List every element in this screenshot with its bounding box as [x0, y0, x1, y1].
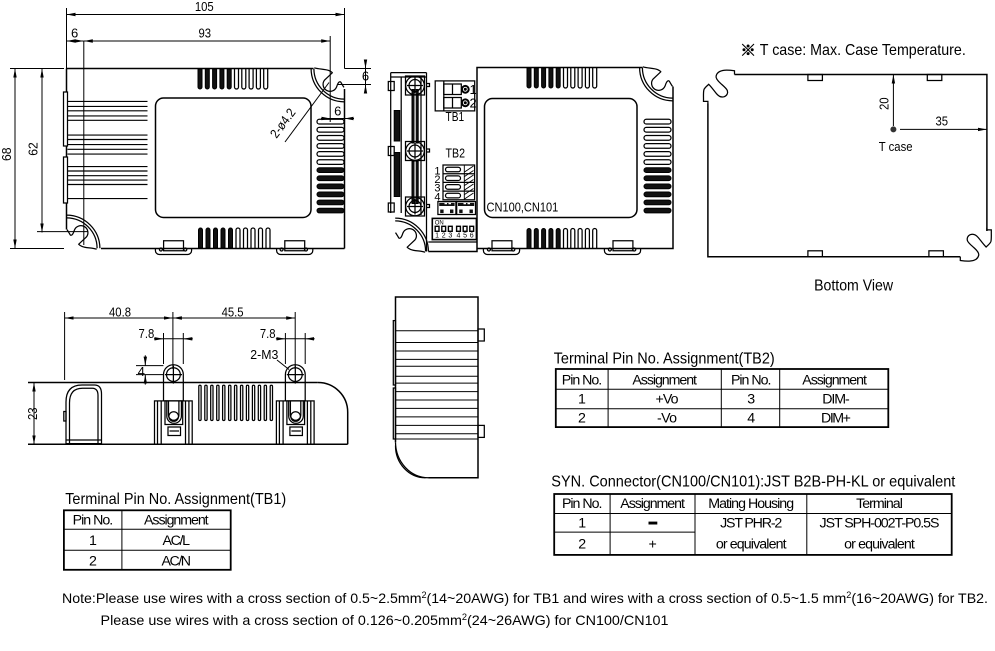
- svg-text:3: 3: [747, 392, 755, 408]
- svg-text:45.5: 45.5: [222, 304, 244, 319]
- svg-text:2-ø4.2: 2-ø4.2: [267, 105, 299, 140]
- svg-text:4: 4: [138, 364, 145, 379]
- svg-text:Please use wires with a cross: Please use wires with a cross section of…: [101, 612, 669, 628]
- svg-text:or equivalent: or equivalent: [716, 536, 787, 552]
- svg-text:Assignment: Assignment: [632, 372, 697, 388]
- svg-text:or equivalent: or equivalent: [844, 536, 915, 552]
- svg-text:Pin No.: Pin No.: [562, 372, 603, 388]
- svg-text:7.8: 7.8: [139, 326, 155, 341]
- svg-text:6: 6: [71, 25, 78, 40]
- svg-text:3: 3: [448, 233, 452, 240]
- svg-text:SYN. Connector(CN100/CN101):JS: SYN. Connector(CN100/CN101):JST B2B-PH-K…: [551, 473, 956, 490]
- svg-text:DIM+: DIM+: [821, 411, 851, 427]
- svg-text:Assignment: Assignment: [620, 496, 685, 512]
- svg-text:93: 93: [199, 25, 212, 40]
- svg-text:6: 6: [362, 69, 369, 84]
- svg-text:Terminal Pin No. Assignment(TB: Terminal Pin No. Assignment(TB1): [65, 491, 286, 508]
- svg-text:JST SPH-002T-P0.5S: JST SPH-002T-P0.5S: [820, 516, 940, 532]
- svg-text:AC/L: AC/L: [163, 533, 191, 549]
- svg-text:Bottom View: Bottom View: [814, 278, 893, 295]
- svg-text:6: 6: [470, 233, 474, 240]
- svg-text:2: 2: [442, 233, 446, 240]
- svg-text:Pin No.: Pin No.: [562, 496, 603, 512]
- svg-text:T case: Max. Case Temperature.: T case: Max. Case Temperature.: [760, 42, 966, 59]
- svg-text:Assignment: Assignment: [144, 513, 209, 529]
- svg-text:1: 1: [435, 233, 439, 240]
- svg-text:Note:Please use wires with a c: Note:Please use wires with a cross secti…: [62, 590, 988, 606]
- svg-text:T case: T case: [879, 139, 913, 154]
- svg-text:TB2: TB2: [446, 147, 466, 161]
- svg-text:2-M3: 2-M3: [250, 347, 278, 362]
- svg-text:1: 1: [578, 516, 586, 532]
- svg-text:20: 20: [877, 97, 892, 110]
- svg-text:AC/N: AC/N: [162, 553, 192, 569]
- svg-text:6: 6: [334, 104, 341, 119]
- svg-text:+Vo: +Vo: [656, 392, 679, 408]
- svg-text:Pin No.: Pin No.: [731, 372, 772, 388]
- svg-text:7.8: 7.8: [260, 326, 276, 341]
- svg-text:68: 68: [0, 148, 14, 162]
- svg-text:4: 4: [457, 233, 461, 240]
- svg-text:2: 2: [578, 536, 586, 552]
- svg-text:2: 2: [578, 411, 586, 427]
- svg-text:Terminal: Terminal: [856, 496, 903, 512]
- svg-text:40.8: 40.8: [109, 304, 131, 319]
- svg-text:105: 105: [195, 0, 214, 14]
- svg-text:62: 62: [25, 142, 40, 156]
- svg-text:TB1: TB1: [446, 110, 465, 124]
- svg-text:JST PHR-2: JST PHR-2: [720, 516, 782, 532]
- svg-text:4: 4: [747, 411, 755, 427]
- svg-text:2: 2: [470, 96, 477, 111]
- svg-text:2: 2: [89, 553, 97, 569]
- svg-text:23: 23: [25, 407, 40, 420]
- svg-text:5: 5: [463, 233, 467, 240]
- svg-text:+: +: [648, 536, 656, 552]
- svg-text:Pin No.: Pin No.: [73, 513, 113, 529]
- svg-text:-Vo: -Vo: [657, 411, 677, 427]
- svg-text:1: 1: [89, 533, 97, 549]
- svg-text:1: 1: [578, 392, 586, 408]
- svg-text:Assignment: Assignment: [802, 372, 867, 388]
- svg-text:Mating Housing: Mating Housing: [708, 496, 794, 512]
- svg-text:35: 35: [936, 114, 949, 129]
- svg-text:DIM-: DIM-: [822, 392, 850, 408]
- svg-text:CN100,CN101: CN100,CN101: [487, 200, 559, 215]
- svg-text:Terminal Pin No. Assignment(TB: Terminal Pin No. Assignment(TB2): [554, 351, 775, 368]
